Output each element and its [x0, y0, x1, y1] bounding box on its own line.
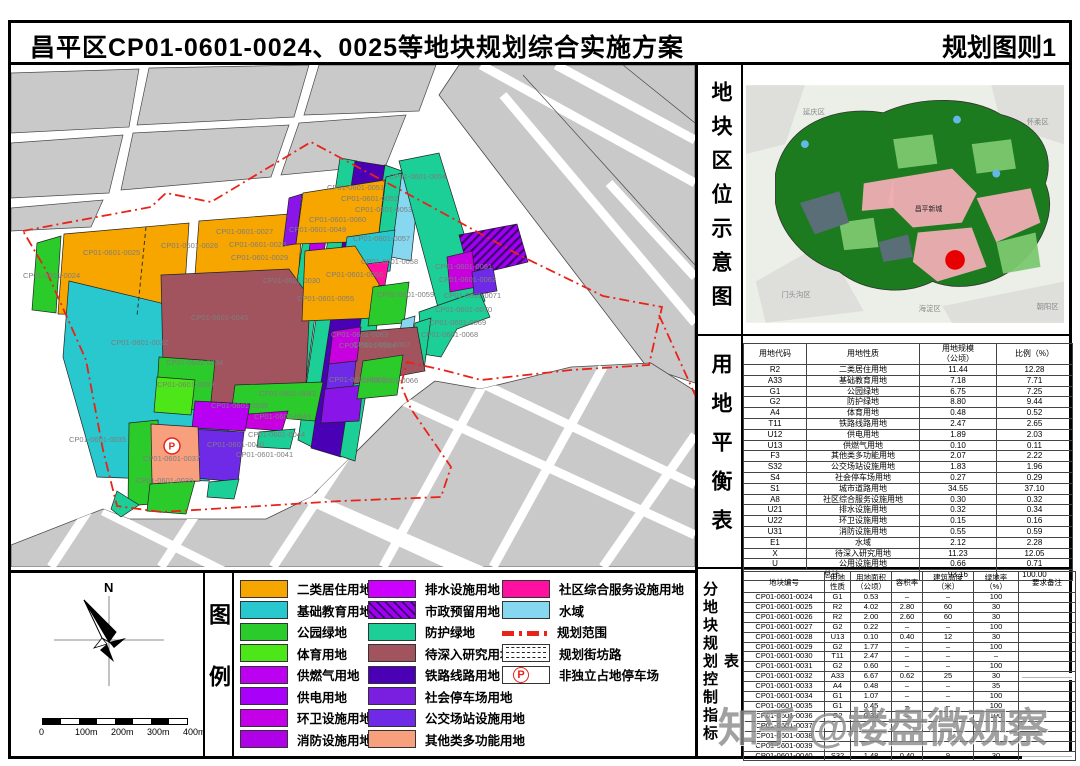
balance-header: 用地规模 （公顷） — [920, 344, 997, 365]
legend-column: 二类居住用地基础教育用地公园绿地体育用地供燃气用地供电用地环卫设施用地消防设施用… — [240, 578, 372, 750]
table-cell: 公交场站设施用地 — [807, 462, 920, 473]
table-row: A4体育用地0.480.52 — [744, 408, 1073, 419]
table-cell: 100 — [974, 593, 1019, 603]
svg-text:P: P — [169, 442, 176, 453]
parcel-label: CP01-0601-0041 — [236, 450, 293, 459]
table-cell: 0.62 — [892, 672, 923, 682]
table-cell: 8.80 — [920, 397, 997, 408]
scale-label: 400m — [183, 727, 206, 737]
legend-item: P非独立占地停车场 — [502, 664, 684, 686]
table-cell: CP01-0601-0026 — [744, 612, 825, 622]
table-cell: – — [974, 652, 1019, 662]
table-cell: – — [892, 652, 923, 662]
main-vertical-divider — [695, 62, 698, 756]
table-row: CP01-0601-0024G10.53––100 — [744, 593, 1076, 603]
table-cell: 0.27 — [920, 472, 997, 483]
table-cell: R2 — [825, 602, 851, 612]
table-cell: 100 — [974, 622, 1019, 632]
table-cell: 1.83 — [920, 462, 997, 473]
table-cell: 12.05 — [997, 548, 1073, 559]
parcel-label: CP01-0601-0032 — [111, 338, 168, 347]
legend-item-label: 供燃气用地 — [297, 665, 360, 684]
table-cell: CP01-0601-0025 — [744, 602, 825, 612]
table-cell: 0.52 — [997, 408, 1073, 419]
scale-label: 100m — [75, 727, 98, 737]
legend-item-label: 其他类多功能用地 — [425, 730, 525, 749]
table-row: S32公交场站设施用地1.831.96 — [744, 462, 1073, 473]
table-cell: 供燃气用地 — [807, 440, 920, 451]
table-cell — [1019, 662, 1076, 672]
table-cell: 公用设施用地 — [807, 559, 920, 570]
table-cell: 37.10 — [997, 483, 1073, 494]
table-row: G1公园绿地6.757.25 — [744, 386, 1073, 397]
table-cell: 2.47 — [920, 418, 997, 429]
table-cell — [1019, 602, 1076, 612]
table-cell: – — [892, 662, 923, 672]
color-swatch — [240, 644, 288, 662]
site-location-dot — [945, 250, 965, 270]
table-cell: 0.48 — [851, 682, 892, 692]
scale-label: 300m — [147, 727, 170, 737]
dashed-road-swatch — [502, 644, 550, 662]
color-swatch — [502, 580, 550, 598]
table-cell — [1019, 612, 1076, 622]
table-cell: 2.60 — [892, 612, 923, 622]
table-row: CP01-0601-0028U130.100.401230 — [744, 632, 1076, 642]
color-swatch — [368, 730, 416, 748]
table-cell: 60 — [923, 602, 974, 612]
parcel-label: CP01-0601-0051 — [327, 183, 384, 192]
parcel-label: CP01-0601-0068 — [421, 330, 478, 339]
table-cell: X — [744, 548, 807, 559]
table-cell: 30 — [974, 612, 1019, 622]
table-cell: 0.29 — [997, 472, 1073, 483]
color-swatch — [240, 601, 288, 619]
table-cell: 排水设施用地 — [807, 505, 920, 516]
table-cell: 2.28 — [997, 537, 1073, 548]
table-row: A8社区综合服务设施用地0.300.32 — [744, 494, 1073, 505]
table-cell: U22 — [744, 516, 807, 527]
table-cell: 2.03 — [997, 429, 1073, 440]
legend-item: 消防设施用地 — [240, 729, 372, 751]
region-label: 延庆区 — [803, 108, 825, 117]
table-cell — [1019, 652, 1076, 662]
legend-item-label: 规划街坊路 — [559, 644, 622, 663]
legend-item: 其他类多功能用地 — [368, 729, 525, 751]
scale-label: 200m — [111, 727, 134, 737]
control-header: 容积率 — [892, 572, 923, 593]
legend-item: 供电用地 — [240, 686, 372, 708]
legend-item-label: 防护绿地 — [425, 622, 475, 641]
parcel-label: CP01-0601-0027 — [216, 227, 273, 236]
table-cell: – — [892, 682, 923, 692]
legend-item-label: 环卫设施用地 — [297, 708, 372, 727]
legend-item: 规划范围 — [502, 621, 684, 643]
legend-item-label: 非独立占地停车场 — [559, 665, 659, 684]
color-swatch — [240, 709, 288, 727]
table-row: S4社会停车场用地0.270.29 — [744, 472, 1073, 483]
table-cell: CP01-0601-0032 — [744, 672, 825, 682]
table-cell: 水域 — [807, 537, 920, 548]
table-cell: 0.32 — [920, 505, 997, 516]
table-cell: – — [892, 642, 923, 652]
legend-item-label: 排水设施用地 — [425, 579, 500, 598]
table-cell: 34.55 — [920, 483, 997, 494]
table-cell: 12 — [923, 632, 974, 642]
table-cell: – — [892, 622, 923, 632]
parking-icon: P — [502, 666, 550, 684]
parcel-label: CP01-0601-0044 — [248, 430, 305, 439]
region-label: 怀柔区 — [1027, 118, 1049, 127]
table-cell: 7.18 — [920, 375, 997, 386]
table-cell — [1019, 593, 1076, 603]
table-cell: G2 — [825, 642, 851, 652]
parcel-label: CP01-0601-0052 — [341, 194, 398, 203]
land-use-balance-table: 用地代码用地性质用地规模 （公顷）比例（%）R2二类居住用地11.4412.28… — [743, 343, 1073, 581]
parcel-label: CP01-0601-0039 — [211, 401, 268, 410]
plan-sheet: 昌平区CP01-0601-0024、0025等地块规划综合实施方案 规划图则1 … — [0, 0, 1080, 766]
legend-item: 公交场站设施用地 — [368, 707, 525, 729]
table-cell: 0.32 — [997, 494, 1073, 505]
table-cell: U — [744, 559, 807, 570]
table-cell: 1.89 — [920, 429, 997, 440]
legend-item-label: 社会停车场用地 — [425, 687, 513, 706]
legend-item-label: 规划范围 — [557, 622, 607, 641]
table-cell: – — [923, 662, 974, 672]
parcel-label: CP01-0601-0054 — [389, 172, 446, 181]
location-mini-map: 延庆区怀柔区门头沟区海淀区朝阳区昌平新城 — [746, 84, 1064, 324]
table-cell: 2.07 — [920, 451, 997, 462]
table-cell: CP01-0601-0027 — [744, 622, 825, 632]
table-row: R2二类居住用地11.4412.28 — [744, 365, 1073, 376]
table-row: CP01-0601-0033A40.48––35 — [744, 682, 1076, 692]
table-cell: 11.44 — [920, 365, 997, 376]
table-cell: – — [923, 622, 974, 632]
parcel-label: CP01-0601-0030 — [263, 276, 320, 285]
parcel-label: CP01-0601-0043 — [254, 412, 311, 421]
region-label: 门头沟区 — [781, 290, 810, 299]
page-title: 昌平区CP01-0601-0024、0025等地块规划综合实施方案 — [30, 28, 684, 64]
parcel-label: CP01-0601-0062 — [439, 275, 496, 284]
table-row: CP01-0601-0025R24.022.806030 — [744, 602, 1076, 612]
legend-column: 社区综合服务设施用地水域规划范围规划街坊路P非独立占地停车场 — [502, 578, 684, 686]
parcel-label: CP01-0601-0028 — [229, 240, 286, 249]
table-cell: 100 — [974, 642, 1019, 652]
table-cell: A33 — [825, 672, 851, 682]
table-cell: E1 — [744, 537, 807, 548]
table-cell: 0.53 — [851, 593, 892, 603]
hatch-swatch — [368, 601, 416, 619]
parcel-label: CP01-0601-0069 — [429, 318, 486, 327]
table-cell: 铁路线路用地 — [807, 418, 920, 429]
balance-header: 用地代码 — [744, 344, 807, 365]
table-cell: G2 — [825, 622, 851, 632]
legend-item-label: 体育用地 — [297, 644, 347, 663]
table-cell: 城市道路用地 — [807, 483, 920, 494]
legend-item: 供燃气用地 — [240, 664, 372, 686]
color-swatch — [240, 666, 288, 684]
legend-item: 二类居住用地 — [240, 578, 372, 600]
table-cell: 0.22 — [851, 622, 892, 632]
watermark: 知乎 @楼盘微观察 — [718, 694, 1047, 754]
table-row: U12供电用地1.892.03 — [744, 429, 1073, 440]
table-cell: 6.67 — [851, 672, 892, 682]
legend-item: 水域 — [502, 600, 684, 622]
parcel-label: CP01-0601-0056 — [326, 270, 383, 279]
table-cell: 2.22 — [997, 451, 1073, 462]
table-cell: 0.10 — [920, 440, 997, 451]
table-cell: – — [923, 652, 974, 662]
table-cell: G2 — [825, 662, 851, 672]
table-cell: U21 — [744, 505, 807, 516]
table-cell: 2.65 — [997, 418, 1073, 429]
table-cell: 30 — [974, 602, 1019, 612]
table-cell: 环卫设施用地 — [807, 516, 920, 527]
table-cell: 2.80 — [892, 602, 923, 612]
table-cell: – — [923, 642, 974, 652]
table-row: A33基础教育用地7.187.71 — [744, 375, 1073, 386]
table-cell: 60 — [923, 612, 974, 622]
table-cell: 11.23 — [920, 548, 997, 559]
parcel-label: CP01-0601-0038 — [136, 476, 193, 485]
table-cell: 0.30 — [920, 494, 997, 505]
table-cell: 公园绿地 — [807, 386, 920, 397]
table-cell: S4 — [744, 472, 807, 483]
table-row: CP01-0601-0026R22.002.606030 — [744, 612, 1076, 622]
table-cell: – — [923, 682, 974, 692]
table-cell — [1019, 622, 1076, 632]
table-cell: G1 — [744, 386, 807, 397]
legend-item: 公园绿地 — [240, 621, 372, 643]
table-cell: 待深入研究用地 — [807, 548, 920, 559]
table-cell: 100 — [974, 662, 1019, 672]
table-cell: U31 — [744, 526, 807, 537]
legend-item: 基础教育用地 — [240, 600, 372, 622]
legend-item-label: 社区综合服务设施用地 — [559, 579, 684, 598]
svg-text:N: N — [104, 580, 113, 595]
table-row: CP01-0601-0029G21.77––100 — [744, 642, 1076, 652]
color-swatch — [368, 687, 416, 705]
parcel-label: CP01-0601-0061 — [435, 262, 492, 271]
legend-item: 社区综合服务设施用地 — [502, 578, 684, 600]
table-row: X待深入研究用地11.2312.05 — [744, 548, 1073, 559]
table-cell: 0.40 — [892, 632, 923, 642]
table-cell: R2 — [825, 612, 851, 622]
table-cell: 2.00 — [851, 612, 892, 622]
table-cell: 30 — [974, 672, 1019, 682]
parcel-label: CP01-0601-0029 — [231, 253, 288, 262]
parcel-label: CP01-0601-0071 — [444, 291, 501, 300]
table-cell: 6.75 — [920, 386, 997, 397]
north-compass: N — [14, 578, 204, 698]
parcel-label: CP01-0601-0025 — [83, 248, 140, 257]
table-row: CP01-0601-0031G20.60––100 — [744, 662, 1076, 672]
table-row: U13供燃气用地0.100.11 — [744, 440, 1073, 451]
plan-map: CP01-0601-0024CP01-0601-0025CP01-0601-00… — [11, 65, 695, 567]
parcel-label: CP01-0601-0037 — [143, 454, 200, 463]
table-cell: 35 — [974, 682, 1019, 692]
boundary-line-swatch — [502, 624, 548, 640]
table-cell: 2.12 — [920, 537, 997, 548]
table-cell: 12.28 — [997, 365, 1073, 376]
color-swatch — [240, 580, 288, 598]
legend-item: 体育用地 — [240, 643, 372, 665]
table-cell: 其他类多功能用地 — [807, 451, 920, 462]
parcel-label: CP01-0601-0035 — [69, 435, 126, 444]
parcel-label: CP01-0601-0060 — [309, 215, 366, 224]
map-parcel-CP01-0601-0061 — [447, 251, 477, 292]
table-cell: 0.48 — [920, 408, 997, 419]
region-label: 朝阳区 — [1037, 302, 1059, 311]
table-cell: 0.10 — [851, 632, 892, 642]
table-cell: CP01-0601-0028 — [744, 632, 825, 642]
legend-item-label: 水域 — [559, 601, 584, 620]
table-cell: 二类居住用地 — [807, 365, 920, 376]
table-cell: U12 — [744, 429, 807, 440]
parcel-label: CP01-0601-0034 — [166, 358, 223, 367]
table-cell: G1 — [825, 593, 851, 603]
parcel-label: CP01-0601-0066 — [361, 376, 418, 385]
parcel-label: CP01-0601-0058 — [361, 257, 418, 266]
table-row: F3其他类多功能用地2.072.22 — [744, 451, 1073, 462]
table-cell: 0.66 — [920, 559, 997, 570]
scale-label: 0 — [39, 727, 44, 737]
table-cell: F3 — [744, 451, 807, 462]
table-cell: S32 — [744, 462, 807, 473]
color-swatch — [240, 730, 288, 748]
table-cell: A33 — [744, 375, 807, 386]
table-cell: 社区综合服务设施用地 — [807, 494, 920, 505]
legend-section-label: 图例 — [204, 600, 232, 730]
table-cell: T11 — [744, 418, 807, 429]
balance-header: 用地性质 — [807, 344, 920, 365]
parcel-label: CP01-0601-0057 — [353, 234, 410, 243]
table-cell: A8 — [744, 494, 807, 505]
table-row: S1城市道路用地34.5537.10 — [744, 483, 1073, 494]
legend-item-label: 二类居住用地 — [297, 579, 372, 598]
table-cell: 9.44 — [997, 397, 1073, 408]
table-cell: 0.55 — [920, 526, 997, 537]
parcel-label: CP01-0601-0070 — [435, 305, 492, 314]
sheet-label: 规划图则1 — [942, 28, 1056, 64]
table-cell: 0.71 — [997, 559, 1073, 570]
legend-item: 社会停车场用地 — [368, 686, 525, 708]
legend-item-label: 市政预留用地 — [425, 601, 500, 620]
table-cell: CP01-0601-0033 — [744, 682, 825, 692]
table-cell: 1.96 — [997, 462, 1073, 473]
control-header: 绿地率 （%） — [974, 572, 1019, 593]
parcel-label: CP01-0601-0033 — [157, 380, 214, 389]
map-parcel-CP01-0601-0065 — [321, 385, 363, 423]
table-row: U21排水设施用地0.320.34 — [744, 505, 1073, 516]
table-cell: S1 — [744, 483, 807, 494]
legend-item-label: 公交场站设施用地 — [425, 708, 525, 727]
control-header: 地块编号 — [744, 572, 825, 593]
table-cell: 0.60 — [851, 662, 892, 672]
parcel-label: CP01-0601-0024 — [23, 271, 80, 280]
table-cell: 7.25 — [997, 386, 1073, 397]
control-header: 用地 性质 — [825, 572, 851, 593]
table-cell: R2 — [744, 365, 807, 376]
parcel-label: CP01-0601-0026 — [161, 241, 218, 250]
table-row: U公用设施用地0.660.71 — [744, 559, 1073, 570]
color-swatch — [368, 623, 416, 641]
parcel-label: CP01-0601-0063 — [331, 330, 388, 339]
legend-item-label: 公园绿地 — [297, 622, 347, 641]
legend-item: 规划街坊路 — [502, 643, 684, 665]
table-cell: 0.16 — [997, 516, 1073, 527]
table-cell: 0.15 — [920, 516, 997, 527]
legend-item-label: 基础教育用地 — [297, 601, 372, 620]
table-cell — [1019, 682, 1076, 692]
table-cell — [1019, 642, 1076, 652]
table-cell — [1019, 672, 1076, 682]
table-cell: 30 — [974, 632, 1019, 642]
region-label: 海淀区 — [919, 304, 941, 313]
table-row: G2防护绿地8.809.44 — [744, 397, 1073, 408]
table-cell: 供电用地 — [807, 429, 920, 440]
table-cell: CP01-0601-0024 — [744, 593, 825, 603]
color-swatch — [368, 580, 416, 598]
table-cell: 4.02 — [851, 602, 892, 612]
parcel-label: CP01-0601-0055 — [297, 294, 354, 303]
legend-divider — [8, 570, 698, 573]
parcel-label: CP01-0601-0045 — [191, 313, 248, 322]
control-header: 建筑高度 （米） — [923, 572, 974, 593]
table-cell: – — [892, 593, 923, 603]
map-parcel-CP01-0601-0041 — [207, 479, 239, 499]
table-cell: U13 — [825, 632, 851, 642]
table-cell: A4 — [825, 682, 851, 692]
table-cell: 2.47 — [851, 652, 892, 662]
table-cell: 体育用地 — [807, 408, 920, 419]
table-cell: 防护绿地 — [807, 397, 920, 408]
color-swatch — [368, 644, 416, 662]
table-cell: 0.59 — [997, 526, 1073, 537]
table-cell: G2 — [744, 397, 807, 408]
table-row: CP01-0601-0032A336.670.622530 — [744, 672, 1076, 682]
control-header: 用地面积 （公顷） — [851, 572, 892, 593]
table-cell: 0.11 — [997, 440, 1073, 451]
color-swatch — [240, 687, 288, 705]
table-cell: 25 — [923, 672, 974, 682]
control-header: 要求备注 — [1019, 572, 1076, 593]
region-label: 昌平新城 — [915, 204, 943, 213]
table-cell: 消防设施用地 — [807, 526, 920, 537]
table-cell — [1019, 632, 1076, 642]
parcel-label: CP01-0601-0053 — [355, 205, 412, 214]
color-swatch — [368, 666, 416, 684]
table-row: CP01-0601-0030T112.47––– — [744, 652, 1076, 662]
parcel-label: CP01-0601-0064 — [339, 341, 396, 350]
color-swatch — [368, 709, 416, 727]
table-row: E1水域2.122.28 — [744, 537, 1073, 548]
table-cell: U13 — [744, 440, 807, 451]
parcel-label: CP01-0601-0049 — [289, 225, 346, 234]
table-cell: CP01-0601-0029 — [744, 642, 825, 652]
parcel-label: CP01-0601-0042 — [259, 389, 316, 398]
table-row: T11铁路线路用地2.472.65 — [744, 418, 1073, 429]
table-cell: A4 — [744, 408, 807, 419]
table-row: CP01-0601-0027G20.22––100 — [744, 622, 1076, 632]
table-cell: 0.34 — [997, 505, 1073, 516]
color-swatch — [240, 623, 288, 641]
location-panel-label: 地块区位示意图 — [699, 80, 741, 320]
legend-item-label: 铁路线路用地 — [425, 665, 500, 684]
table-cell: 1.77 — [851, 642, 892, 652]
table-cell: T11 — [825, 652, 851, 662]
parcel-label: CP01-0601-0040 — [207, 440, 264, 449]
